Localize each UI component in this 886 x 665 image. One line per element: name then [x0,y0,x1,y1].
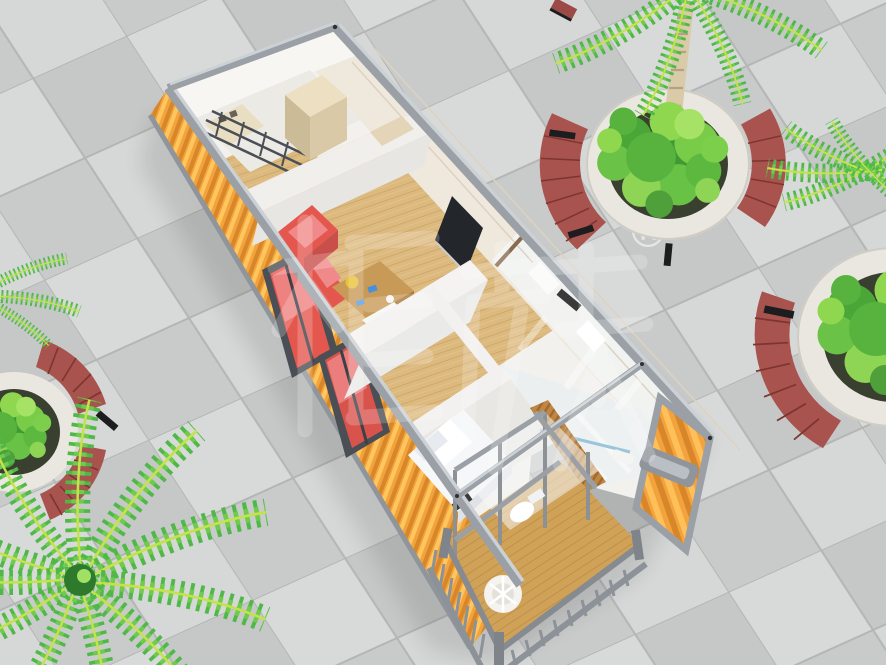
render-canvas: 柜族 [0,0,886,665]
container-house-scene: ® [0,0,886,665]
